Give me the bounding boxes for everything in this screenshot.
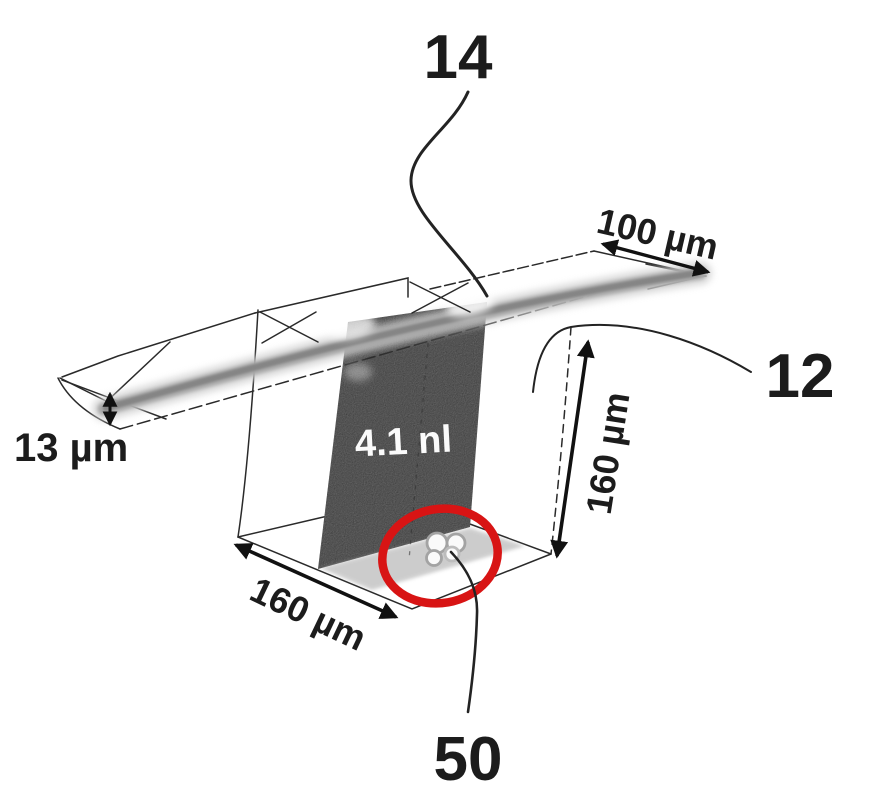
channel-back-edge-right — [430, 251, 594, 289]
label-14: 14 — [424, 23, 493, 92]
well-left-vertical-edge — [238, 310, 258, 537]
cell-3 — [427, 551, 442, 566]
dimension-channel-width: 100 µm — [593, 200, 722, 272]
label-12: 12 — [766, 342, 835, 411]
label-50: 50 — [434, 725, 503, 794]
dim-arrow-160um-height — [557, 342, 588, 556]
dim-label-160um-height: 160 µm — [578, 389, 638, 517]
leader-line-50 — [451, 552, 477, 712]
leader-line-14 — [411, 92, 487, 296]
dimension-chamber-height: 160 µm — [557, 342, 638, 556]
dim-label-160um-width: 160 µm — [244, 569, 373, 659]
well-back-top-edge — [255, 278, 408, 313]
slab-glow-spot — [344, 363, 372, 381]
dimension-channel-height: 13 µm — [14, 394, 128, 470]
leader-line-12 — [533, 325, 751, 392]
patent-figure: 4.1 nl 100 µm 13 µm 160 µm 160 µm 14 12 … — [0, 0, 875, 801]
figure-canvas: 4.1 nl 100 µm 13 µm 160 µm 160 µm 14 12 … — [0, 0, 875, 801]
volume-label: 4.1 nl — [354, 419, 453, 466]
well-floor-back-left-edge — [238, 515, 332, 537]
dim-label-13um: 13 µm — [14, 426, 128, 470]
